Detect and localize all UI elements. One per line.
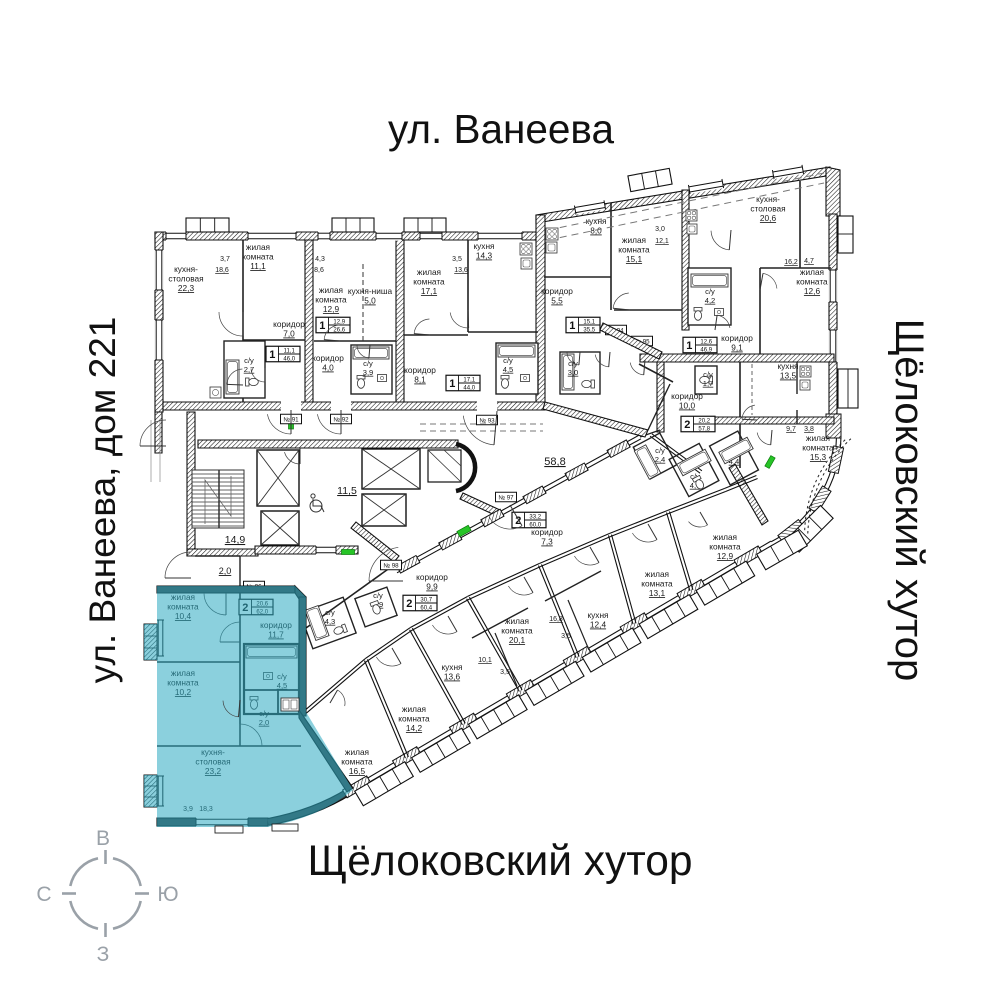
svg-text:14,2: 14,2	[406, 723, 423, 733]
svg-text:коридор: коридор	[721, 333, 753, 343]
svg-text:20,6: 20,6	[760, 213, 777, 223]
svg-text:30,7: 30,7	[420, 597, 432, 603]
svg-text:Ю: Ю	[157, 883, 178, 906]
svg-text:№ 98: № 98	[383, 562, 399, 569]
svg-text:кухня-ниша: кухня-ниша	[348, 286, 393, 296]
svg-text:12,6: 12,6	[700, 339, 712, 345]
svg-text:17,1: 17,1	[463, 377, 475, 383]
svg-text:9,9: 9,9	[426, 582, 438, 592]
svg-text:№ 97: № 97	[498, 494, 514, 501]
svg-text:2,4: 2,4	[655, 455, 666, 464]
svg-text:коридор: коридор	[541, 286, 573, 296]
svg-text:5,0: 5,0	[364, 296, 376, 306]
svg-text:З: З	[97, 943, 110, 966]
svg-text:8,6: 8,6	[314, 267, 324, 274]
svg-text:12,9: 12,9	[717, 551, 734, 561]
svg-text:16,5: 16,5	[349, 766, 366, 776]
svg-text:1,7: 1,7	[703, 379, 714, 388]
svg-text:11,1: 11,1	[284, 348, 296, 354]
svg-text:жилая: жилая	[713, 532, 737, 542]
svg-text:с/у: с/у	[363, 359, 373, 368]
svg-text:3,5: 3,5	[452, 256, 462, 263]
svg-text:с/у: с/у	[655, 446, 665, 455]
svg-text:57,8: 57,8	[698, 426, 710, 432]
svg-text:2,0: 2,0	[219, 566, 232, 576]
svg-text:комната: комната	[802, 443, 834, 453]
svg-text:комната: комната	[641, 579, 673, 589]
svg-text:комната: комната	[242, 252, 274, 262]
svg-text:46,9: 46,9	[700, 347, 712, 353]
svg-text:20,2: 20,2	[698, 418, 710, 424]
svg-text:с/у: с/у	[244, 356, 254, 365]
svg-text:46,0: 46,0	[283, 356, 295, 362]
svg-text:1: 1	[319, 320, 325, 332]
svg-text:комната: комната	[398, 714, 430, 724]
svg-text:13,5: 13,5	[780, 371, 797, 381]
svg-text:5,5: 5,5	[551, 296, 563, 306]
svg-text:44,0: 44,0	[463, 385, 475, 391]
svg-text:№ 93: № 93	[479, 417, 495, 424]
svg-text:кухня-: кухня-	[174, 264, 198, 274]
svg-text:комната: комната	[413, 277, 445, 287]
svg-text:15,3: 15,3	[810, 452, 827, 462]
svg-text:кухня: кухня	[777, 361, 798, 371]
svg-text:жилая: жилая	[246, 242, 270, 252]
svg-text:коридор: коридор	[671, 391, 703, 401]
svg-text:4,2: 4,2	[705, 296, 716, 305]
svg-text:комната: комната	[315, 295, 347, 305]
svg-text:жилая: жилая	[645, 569, 669, 579]
svg-text:22,3: 22,3	[178, 283, 195, 293]
svg-text:9,7: 9,7	[786, 426, 796, 433]
svg-text:кухня: кухня	[587, 610, 608, 620]
svg-text:7,3: 7,3	[541, 537, 553, 547]
svg-text:с/у: с/у	[503, 356, 513, 365]
svg-text:1: 1	[269, 349, 275, 361]
svg-text:1: 1	[569, 320, 575, 332]
svg-text:10,1: 10,1	[478, 657, 492, 664]
svg-text:2: 2	[684, 419, 690, 431]
svg-text:С: С	[36, 883, 51, 906]
svg-text:12,9: 12,9	[333, 319, 345, 325]
svg-text:17,1: 17,1	[421, 286, 438, 296]
svg-text:13,1: 13,1	[649, 588, 666, 598]
svg-text:столовая: столовая	[168, 274, 203, 284]
svg-text:ул. Ванеева: ул. Ванеева	[388, 106, 615, 152]
svg-text:9,1: 9,1	[731, 343, 743, 353]
svg-text:кухня-: кухня-	[756, 194, 780, 204]
svg-text:комната: комната	[709, 542, 741, 552]
svg-text:жилая: жилая	[402, 704, 426, 714]
svg-text:13,6: 13,6	[454, 267, 468, 274]
svg-text:с/у: с/у	[703, 370, 713, 379]
svg-text:коридор: коридор	[312, 353, 344, 363]
svg-text:10,0: 10,0	[679, 401, 696, 411]
svg-text:13,6: 13,6	[444, 672, 461, 682]
svg-text:1: 1	[449, 378, 455, 390]
svg-text:1: 1	[686, 340, 692, 352]
svg-text:20,1: 20,1	[509, 635, 526, 645]
svg-text:3,9: 3,9	[363, 368, 374, 377]
svg-text:12,1: 12,1	[655, 238, 669, 245]
svg-text:4,7: 4,7	[804, 258, 814, 265]
svg-text:16,2: 16,2	[784, 259, 798, 266]
svg-text:кухня: кухня	[441, 662, 462, 672]
svg-text:3,0: 3,0	[655, 226, 665, 233]
svg-text:жилая: жилая	[800, 267, 824, 277]
svg-text:4,5: 4,5	[503, 365, 514, 374]
svg-text:3,0: 3,0	[568, 368, 579, 377]
svg-text:14,9: 14,9	[225, 534, 246, 546]
svg-text:комната: комната	[618, 245, 650, 255]
svg-text:16,8: 16,8	[549, 616, 563, 623]
svg-text:12,9: 12,9	[323, 304, 340, 314]
svg-text:15,1: 15,1	[583, 319, 595, 325]
svg-text:комната: комната	[796, 277, 828, 287]
svg-text:8,1: 8,1	[414, 375, 426, 385]
svg-text:3,7: 3,7	[220, 256, 230, 263]
svg-text:кухня: кухня	[585, 216, 606, 226]
svg-text:2: 2	[515, 515, 521, 527]
svg-text:14,3: 14,3	[476, 251, 493, 261]
svg-text:коридор: коридор	[416, 572, 448, 582]
svg-text:3,8: 3,8	[804, 426, 814, 433]
svg-text:7,0: 7,0	[283, 329, 295, 339]
svg-text:2,7: 2,7	[244, 365, 255, 374]
svg-text:кухня: кухня	[473, 241, 494, 251]
svg-text:2: 2	[406, 598, 412, 610]
svg-text:комната: комната	[341, 757, 373, 767]
svg-text:3,5: 3,5	[500, 669, 510, 676]
svg-text:18,6: 18,6	[215, 267, 229, 274]
svg-text:жилая: жилая	[417, 267, 441, 277]
svg-text:с/у: с/у	[373, 591, 383, 600]
svg-text:жилая: жилая	[622, 235, 646, 245]
svg-text:жилая: жилая	[505, 616, 529, 626]
svg-text:4,3: 4,3	[315, 256, 325, 263]
svg-text:В: В	[96, 827, 110, 850]
svg-text:с/у: с/у	[325, 608, 335, 617]
svg-text:ул. Ванеева, дом 221: ул. Ванеева, дом 221	[82, 317, 123, 684]
svg-text:коридор: коридор	[531, 527, 563, 537]
svg-text:11,1: 11,1	[250, 261, 266, 271]
svg-text:с/у: с/у	[705, 287, 715, 296]
svg-text:жилая: жилая	[319, 285, 343, 295]
svg-text:3,5: 3,5	[561, 633, 571, 640]
svg-text:столовая: столовая	[750, 204, 785, 214]
svg-text:15,1: 15,1	[626, 254, 643, 264]
svg-text:12,4: 12,4	[590, 620, 607, 630]
svg-text:комната: комната	[501, 626, 533, 636]
svg-text:60,4: 60,4	[420, 605, 432, 611]
svg-text:26,6: 26,6	[333, 327, 345, 333]
svg-text:12,6: 12,6	[804, 286, 821, 296]
svg-text:35,5: 35,5	[583, 327, 595, 333]
svg-text:Щёлоковский хутор: Щёлоковский хутор	[307, 838, 692, 885]
svg-text:Щёлоковский хутор: Щёлоковский хутор	[887, 319, 931, 681]
svg-text:4,0: 4,0	[322, 363, 334, 373]
svg-text:4,3: 4,3	[325, 617, 336, 626]
svg-text:жилая: жилая	[806, 433, 830, 443]
svg-text:58,8: 58,8	[544, 456, 565, 468]
svg-text:коридор: коридор	[404, 365, 436, 375]
svg-text:33,2: 33,2	[529, 514, 541, 520]
svg-text:жилая: жилая	[345, 747, 369, 757]
svg-text:11,5: 11,5	[337, 485, 357, 497]
svg-text:коридор: коридор	[273, 319, 305, 329]
